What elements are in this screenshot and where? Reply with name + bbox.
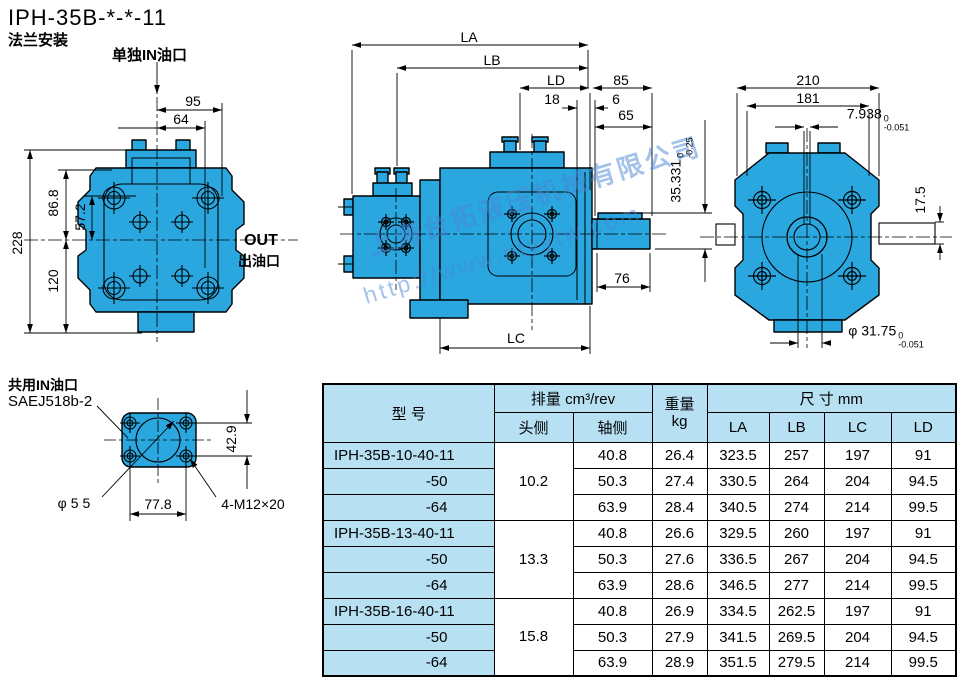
dim-31-75-label: φ 31.750-0.051 [848,323,924,350]
lb-cell: 257 [769,442,824,468]
la-cell: 351.5 [707,650,769,676]
sae-flange-label: SAEJ518b-2 [8,393,92,410]
dim-7-938-value: 7.938 [847,106,882,122]
ld-cell: 94.5 [891,468,956,494]
ld-cell: 91 [891,442,956,468]
side-view-drawing [338,45,712,354]
dim-86-8-label: 86.8 [45,189,61,216]
weight-label: 重量 [653,396,707,413]
col-header-model: 型 号 [323,384,494,442]
lb-cell: 279.5 [769,650,824,676]
model-cell: -50 [323,546,494,572]
dim-77-8-label: 77.8 [144,496,171,512]
col-header-ld: LD [891,412,956,442]
mounting-type-label: 法兰安装 [8,29,68,50]
shaft-side-cell: 63.9 [573,650,652,676]
out-port-sublabel: 出油口 [238,251,280,271]
dim-17-5-label: 17.5 [912,186,928,213]
dim-phi55-label: φ55 [58,495,95,511]
model-cell: IPH-35B-13-40-11 [323,520,494,546]
dim-6-label: 6 [612,91,620,107]
lc-cell: 197 [824,442,891,468]
model-cell: -64 [323,572,494,598]
table-row: IPH-35B-13-40-11 13.3 40.8 26.6 329.5 26… [323,520,956,546]
la-cell: 346.5 [707,572,769,598]
col-header-displacement: 排量 cm³/rev [494,384,652,412]
ld-cell: 99.5 [891,572,956,598]
weight-cell: 28.6 [652,572,707,598]
col-header-lb: LB [769,412,824,442]
col-header-head-side: 头侧 [494,412,573,442]
lc-cell: 214 [824,650,891,676]
dim-228-label: 228 [9,231,25,254]
ld-cell: 94.5 [891,624,956,650]
model-cell: -50 [323,624,494,650]
shaft-side-cell: 40.8 [573,598,652,624]
pump-front-body [78,140,244,332]
shaft-side-cell: 50.3 [573,468,652,494]
shaft-side-cell: 50.3 [573,624,652,650]
table-row: -64 63.9 28.6 346.5 277 214 99.5 [323,572,956,598]
model-cell: -64 [323,650,494,676]
tol-bottom: -0.051 [898,341,924,350]
shaft-side-cell: 63.9 [573,494,652,520]
lc-cell: 204 [824,624,891,650]
shaft-side-cell: 40.8 [573,442,652,468]
dim-7-938-label: 7.9380-0.051 [847,106,910,133]
shaft-side-cell: 40.8 [573,520,652,546]
dim-85-label: 85 [613,72,629,88]
lc-cell: 214 [824,572,891,598]
front-view-drawing [24,62,298,342]
col-header-la: LA [707,412,769,442]
rear-view-drawing [700,88,952,348]
table-row: -50 50.3 27.9 341.5 269.5 204 94.5 [323,624,956,650]
weight-unit-label: kg [653,413,707,430]
model-cell: -50 [323,468,494,494]
weight-cell: 27.9 [652,624,707,650]
weight-cell: 28.9 [652,650,707,676]
dim-120-label: 120 [45,269,61,292]
dim-31-75-value: φ 31.75 [848,323,896,339]
dim-57-2-label: 57.2 [72,203,88,230]
dim-95-label: 95 [185,93,201,109]
head-side-cell: 15.8 [494,598,573,676]
bolt-spec-label: 4-M12×20 [221,496,284,512]
dim-210-label: 210 [796,72,819,88]
dim-65-label: 65 [618,107,634,123]
la-cell: 334.5 [707,598,769,624]
dim-lb-label: LB [483,52,500,68]
lb-cell: 264 [769,468,824,494]
ld-cell: 94.5 [891,546,956,572]
col-header-weight: 重量 kg [652,384,707,442]
table-row: IPH-35B-10-40-11 10.2 40.8 26.4 323.5 25… [323,442,956,468]
weight-cell: 26.6 [652,520,707,546]
page-title: IPH-35B-*-*-11 [8,5,167,31]
la-cell: 329.5 [707,520,769,546]
dim-181-label: 181 [796,90,819,106]
lb-cell: 277 [769,572,824,598]
weight-cell: 27.6 [652,546,707,572]
datasheet-page: { "colors": { "pump_fill": "#2aa7df", "t… [0,0,961,680]
tol-bottom: -0.25 [686,137,695,158]
lc-cell: 197 [824,598,891,624]
model-cell: IPH-35B-10-40-11 [323,442,494,468]
ld-cell: 91 [891,598,956,624]
dim-76-label: 76 [614,270,630,286]
out-port-label: OUT [244,232,278,250]
lb-cell: 260 [769,520,824,546]
in-port-label: 单独IN油口 [112,44,187,65]
lc-cell: 197 [824,520,891,546]
table-row: IPH-35B-16-40-11 15.8 40.8 26.9 334.5 26… [323,598,956,624]
ld-cell: 91 [891,520,956,546]
head-side-cell: 13.3 [494,520,573,598]
ld-cell: 99.5 [891,494,956,520]
col-header-dimensions: 尺 寸 mm [707,384,956,412]
la-cell: 330.5 [707,468,769,494]
lc-cell: 204 [824,546,891,572]
dim-7-938-tolerance: 0-0.051 [884,115,910,133]
shaft-side-cell: 63.9 [573,572,652,598]
dim-35-331-label: 35.3310-0.25 [668,137,695,202]
spec-table: 型 号 排量 cm³/rev 重量 kg 尺 寸 mm 头侧 轴侧 LA LB … [322,383,957,677]
table-row: -64 63.9 28.9 351.5 279.5 214 99.5 [323,650,956,676]
shaft-side-cell: 50.3 [573,546,652,572]
la-cell: 323.5 [707,442,769,468]
dim-64-label: 64 [173,111,189,127]
la-cell: 341.5 [707,624,769,650]
table-row: -50 50.3 27.6 336.5 267 204 94.5 [323,546,956,572]
head-side-cell: 10.2 [494,442,573,520]
dim-18-label: 18 [544,91,560,107]
lc-cell: 214 [824,494,891,520]
la-cell: 336.5 [707,546,769,572]
lb-cell: 262.5 [769,598,824,624]
model-cell: IPH-35B-16-40-11 [323,598,494,624]
weight-cell: 27.4 [652,468,707,494]
lb-cell: 269.5 [769,624,824,650]
lb-cell: 267 [769,546,824,572]
col-header-shaft-side: 轴侧 [573,412,652,442]
dim-31-75-tolerance: 0-0.051 [898,332,924,350]
weight-cell: 26.4 [652,442,707,468]
la-cell: 340.5 [707,494,769,520]
ld-cell: 99.5 [891,650,956,676]
dim-35-331-tolerance: 0-0.25 [677,137,695,158]
dim-lc-label: LC [507,330,525,346]
dim-35-331-value: 35.331 [668,160,684,203]
model-cell: -64 [323,494,494,520]
table-row: -50 50.3 27.4 330.5 264 204 94.5 [323,468,956,494]
shared-in-port-label: 共用IN油口 [8,375,78,395]
lc-cell: 204 [824,468,891,494]
tol-bottom: -0.051 [884,124,910,133]
dim-la-label: LA [460,29,477,45]
weight-cell: 26.9 [652,598,707,624]
weight-cell: 28.4 [652,494,707,520]
lb-cell: 274 [769,494,824,520]
col-header-lc: LC [824,412,891,442]
dim-42-9-label: 42.9 [223,425,239,452]
dim-ld-label: LD [547,72,565,88]
table-row: -64 63.9 28.4 340.5 274 214 99.5 [323,494,956,520]
